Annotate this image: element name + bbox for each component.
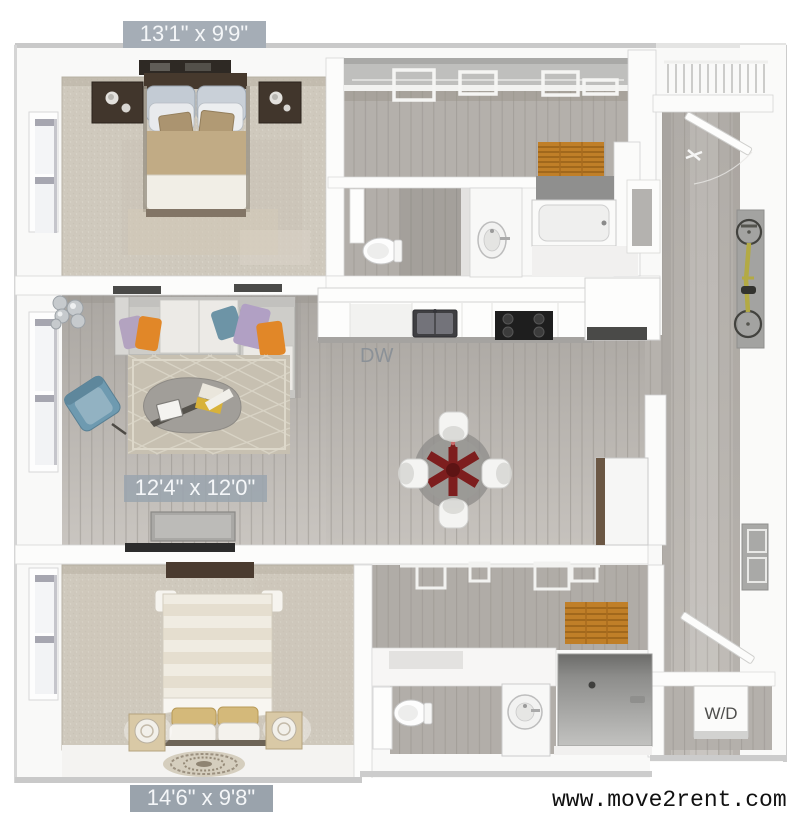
svg-text:W/D: W/D	[704, 704, 737, 723]
svg-text:12'4" x 12'0": 12'4" x 12'0"	[135, 475, 256, 500]
svg-text:www.move2rent.com: www.move2rent.com	[552, 787, 787, 813]
svg-text:DW: DW	[360, 345, 393, 367]
svg-text:13'1" x 9'9": 13'1" x 9'9"	[140, 21, 248, 46]
svg-text:14'6" x 9'8": 14'6" x 9'8"	[147, 785, 255, 810]
